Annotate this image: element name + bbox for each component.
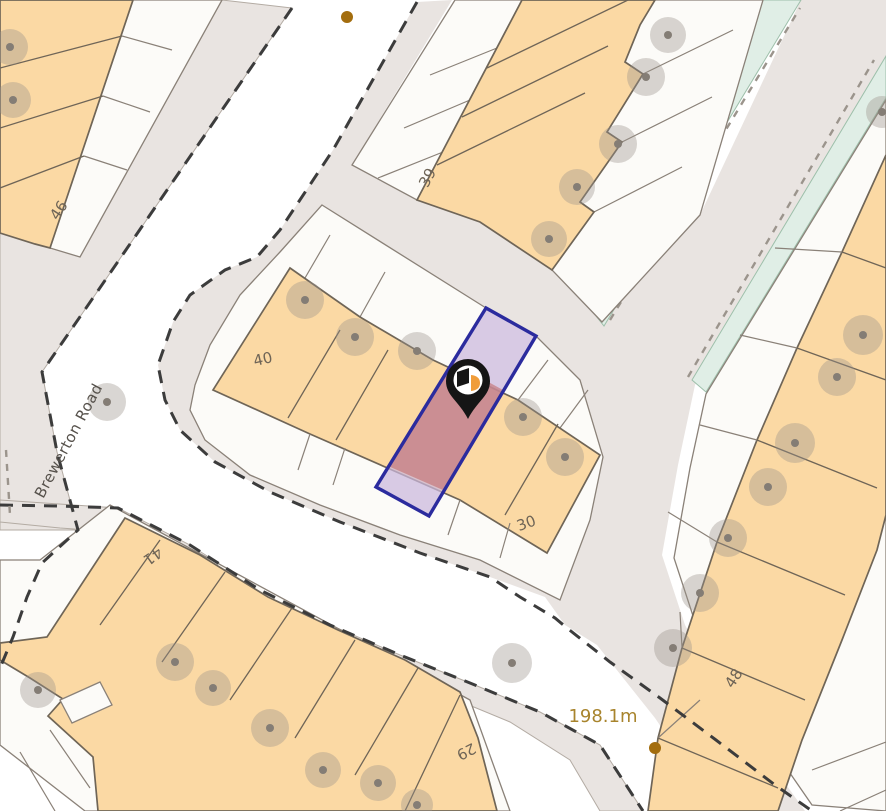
map-viewport[interactable]: 46 39 40 30 41 29 48 Brewerton Road 198.… xyxy=(0,0,886,811)
map-canvas[interactable]: 46 39 40 30 41 29 48 Brewerton Road 198.… xyxy=(0,0,886,811)
measurement-label: 198.1m xyxy=(568,706,637,727)
survey-dot-icon xyxy=(341,11,353,23)
survey-dot-icon xyxy=(649,742,661,754)
